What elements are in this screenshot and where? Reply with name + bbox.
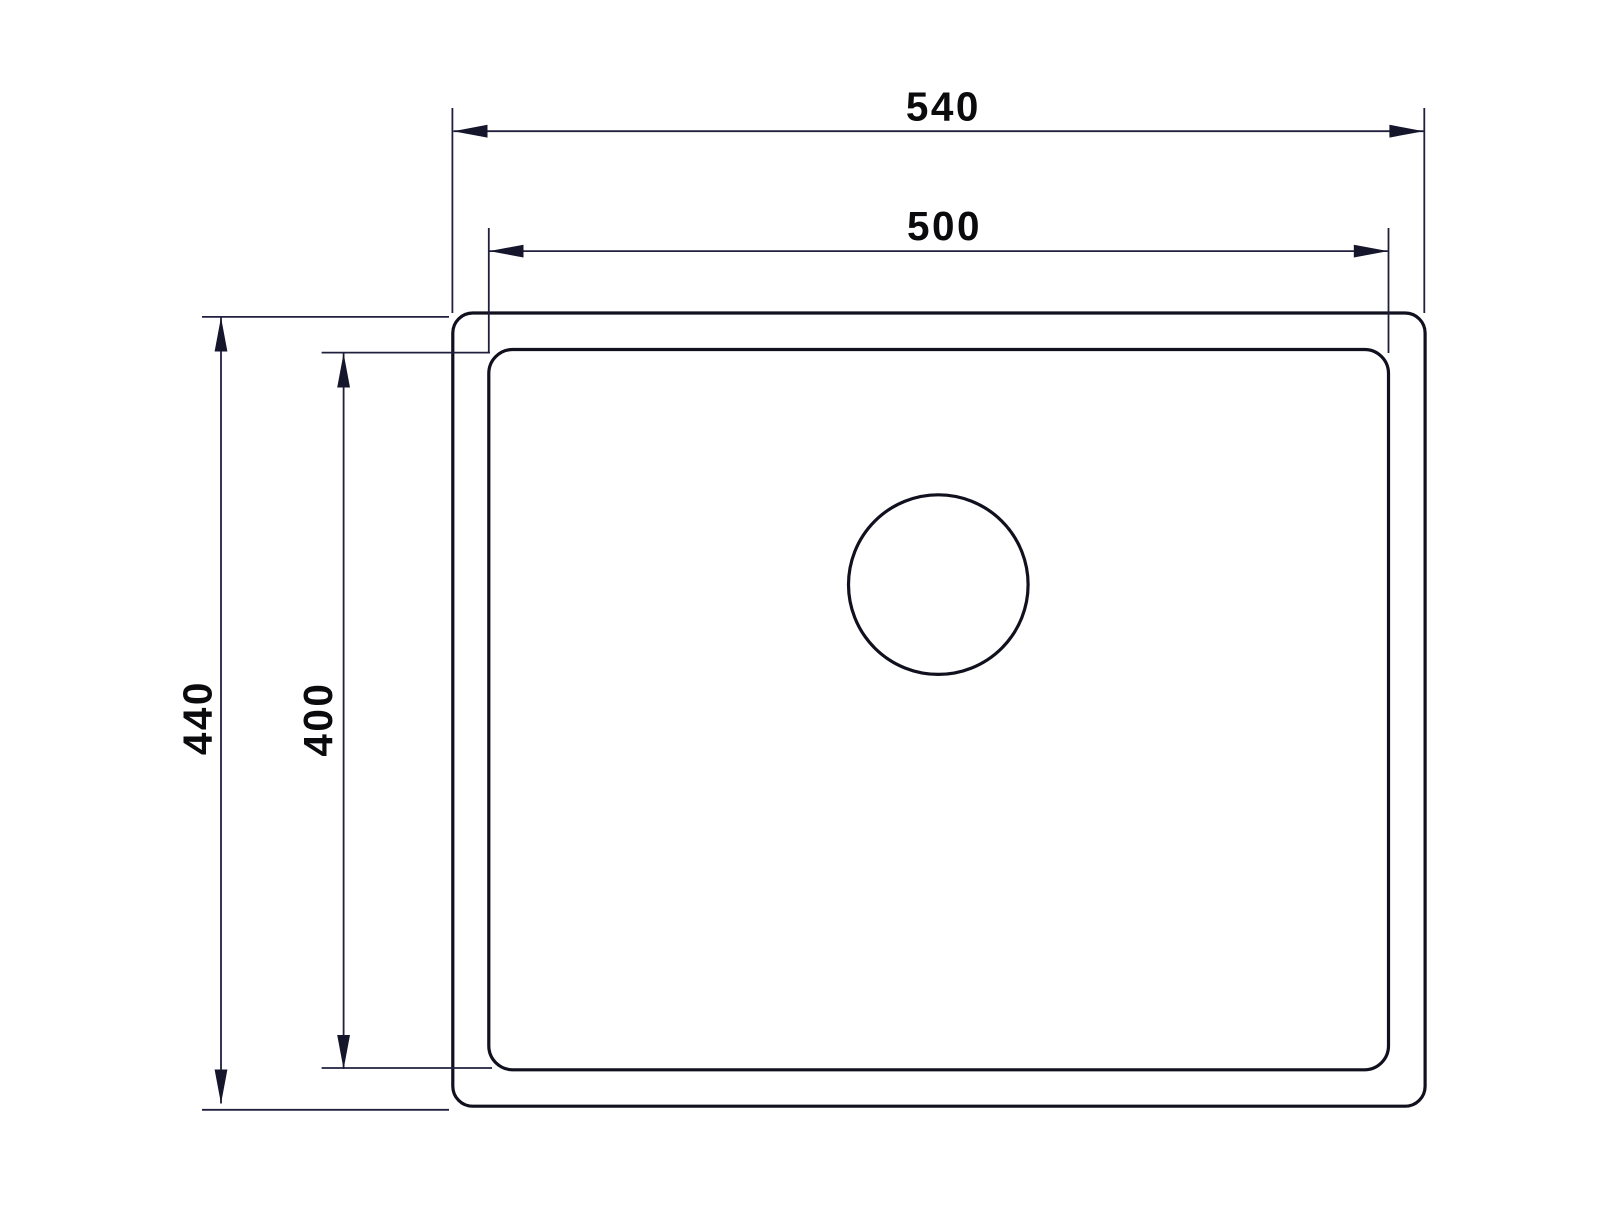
svg-text:400: 400 bbox=[295, 682, 341, 757]
svg-text:500: 500 bbox=[907, 203, 982, 249]
svg-text:440: 440 bbox=[175, 680, 221, 755]
svg-text:540: 540 bbox=[906, 83, 981, 129]
